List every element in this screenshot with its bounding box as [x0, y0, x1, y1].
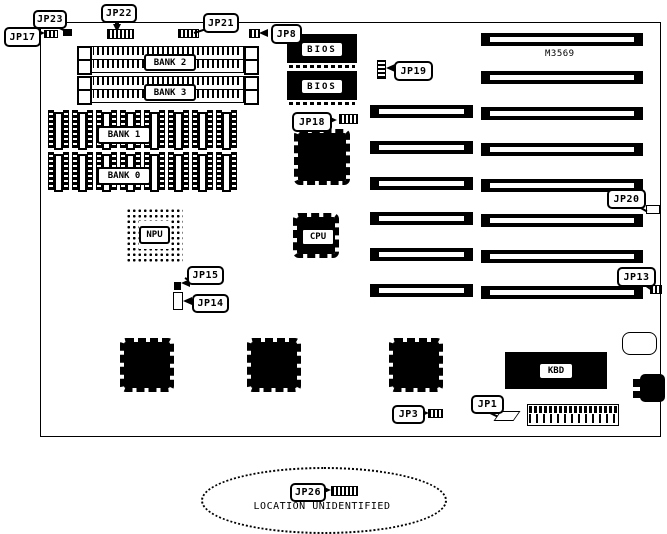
- model-label: M3569: [545, 49, 575, 59]
- dip-chip: [168, 110, 189, 148]
- isa-slot-short: [370, 177, 473, 190]
- isa-slot-short: [370, 212, 473, 225]
- simm-clip: [77, 89, 92, 105]
- dip-chip: [168, 152, 189, 190]
- isa-slot-short: [370, 248, 473, 261]
- callout-jp13-label: JP13: [623, 272, 649, 283]
- dip-chip: [216, 152, 237, 190]
- callout-jp23-label: JP23: [37, 14, 63, 25]
- qfp-chip: [389, 338, 443, 392]
- keyboard-connector-tab: [633, 379, 641, 387]
- callout-jp26-label: JP26: [295, 487, 321, 498]
- dip-chip: [48, 152, 69, 190]
- jumper-jp17: [44, 30, 58, 38]
- power-connector: [527, 404, 619, 426]
- callout-jp15-label: JP15: [192, 270, 218, 281]
- leader-jp22-arrow: [113, 24, 121, 32]
- cpu-chip: CPU: [293, 213, 339, 258]
- qfp-chip: [294, 129, 350, 185]
- bank1-label: BANK 1: [97, 126, 151, 144]
- callout-jp13: JP13: [617, 267, 656, 287]
- isa-slot-long: [481, 107, 643, 120]
- dip-chip: [216, 110, 237, 148]
- bank3-label: BANK 3: [144, 84, 196, 101]
- jumper-jp18: [339, 114, 358, 124]
- npu-socket: NPU: [126, 208, 183, 262]
- callout-jp8: JP8: [271, 24, 302, 44]
- isa-slot-long: [481, 33, 643, 46]
- jumper-jp20: [646, 205, 660, 214]
- callout-jp18: JP18: [292, 112, 332, 132]
- isa-slot-long: [481, 143, 643, 156]
- dip-chip: [192, 110, 213, 148]
- callout-jp3-label: JP3: [399, 409, 419, 420]
- callout-jp19-label: JP19: [400, 66, 426, 77]
- callout-jp15: JP15: [187, 266, 224, 285]
- keyboard-connector-tab: [633, 391, 641, 398]
- callout-jp19: JP19: [394, 61, 433, 81]
- npu-socket-center: NPU: [139, 221, 170, 249]
- simm-clip: [77, 59, 92, 75]
- bank2-label: BANK 2: [144, 54, 196, 71]
- isa-slot-long: [481, 214, 643, 227]
- callout-jp21: JP21: [203, 13, 239, 33]
- dip-chip: [72, 110, 93, 148]
- isa-slot-short: [370, 105, 473, 118]
- callout-jp1: JP1: [471, 395, 504, 414]
- callout-jp14: JP14: [192, 294, 229, 313]
- kbd-label: KBD: [539, 363, 573, 379]
- keyboard-connector: [640, 374, 665, 402]
- callout-jp17-label: JP17: [9, 32, 35, 43]
- callout-jp18-label: JP18: [299, 117, 325, 128]
- dip-chip: [72, 152, 93, 190]
- callout-jp26: JP26: [290, 483, 326, 502]
- callout-jp1-label: JP1: [478, 399, 498, 410]
- isa-slot-long: [481, 250, 643, 263]
- leader-jp14-arrow: [183, 297, 192, 305]
- isa-slot-short: [370, 284, 473, 297]
- cpu-label: CPU: [301, 228, 335, 246]
- qfp-chip: [247, 338, 301, 392]
- power-connector-teeth: [529, 414, 617, 423]
- simm-clip: [244, 59, 259, 75]
- callout-jp20-label: JP20: [613, 194, 639, 205]
- callout-jp22: JP22: [101, 4, 137, 23]
- unidentified-caption: LOCATION UNIDENTIFIED: [201, 501, 443, 512]
- kbd-chip: KBD: [505, 352, 607, 389]
- callout-jp8-label: JP8: [277, 29, 297, 40]
- isa-slot-long: [481, 71, 643, 84]
- bios-socket-dashes: [289, 102, 355, 105]
- isa-slot-short: [370, 141, 473, 154]
- motherboard-diagram: JP23 JP22 JP21 JP17 JP8 BANK 2 BANK 3 BA…: [0, 0, 667, 534]
- jumper-jp19: [377, 60, 386, 79]
- bank0-label: BANK 0: [97, 167, 151, 185]
- callout-jp17: JP17: [4, 27, 41, 47]
- bios-socket-dashes: [289, 65, 355, 68]
- callout-jp23: JP23: [33, 10, 67, 29]
- callout-jp14-label: JP14: [197, 298, 223, 309]
- isa-slot-long: [481, 286, 643, 299]
- jumper-jp14: [173, 292, 183, 310]
- jumper-jp26: [331, 486, 358, 496]
- callout-jp21-label: JP21: [208, 18, 234, 29]
- callout-jp3: JP3: [392, 405, 425, 424]
- dip-chip: [192, 152, 213, 190]
- leader-jp8-arrow: [259, 29, 268, 37]
- dip-chip: [48, 110, 69, 148]
- bios-bottom-label: BIOS: [301, 79, 343, 94]
- jumper-jp15: [174, 282, 181, 290]
- simm-clip: [244, 89, 259, 105]
- npu-label: NPU: [139, 226, 170, 244]
- battery-outline: [622, 332, 657, 355]
- callout-jp22-label: JP22: [106, 8, 132, 19]
- power-connector-header: [529, 406, 617, 413]
- bios-top-label: BIOS: [301, 42, 343, 57]
- qfp-chip: [120, 338, 174, 392]
- callout-jp20: JP20: [607, 189, 646, 209]
- bios-chip-bottom: BIOS: [287, 71, 357, 100]
- jumper-jp3: [428, 409, 443, 418]
